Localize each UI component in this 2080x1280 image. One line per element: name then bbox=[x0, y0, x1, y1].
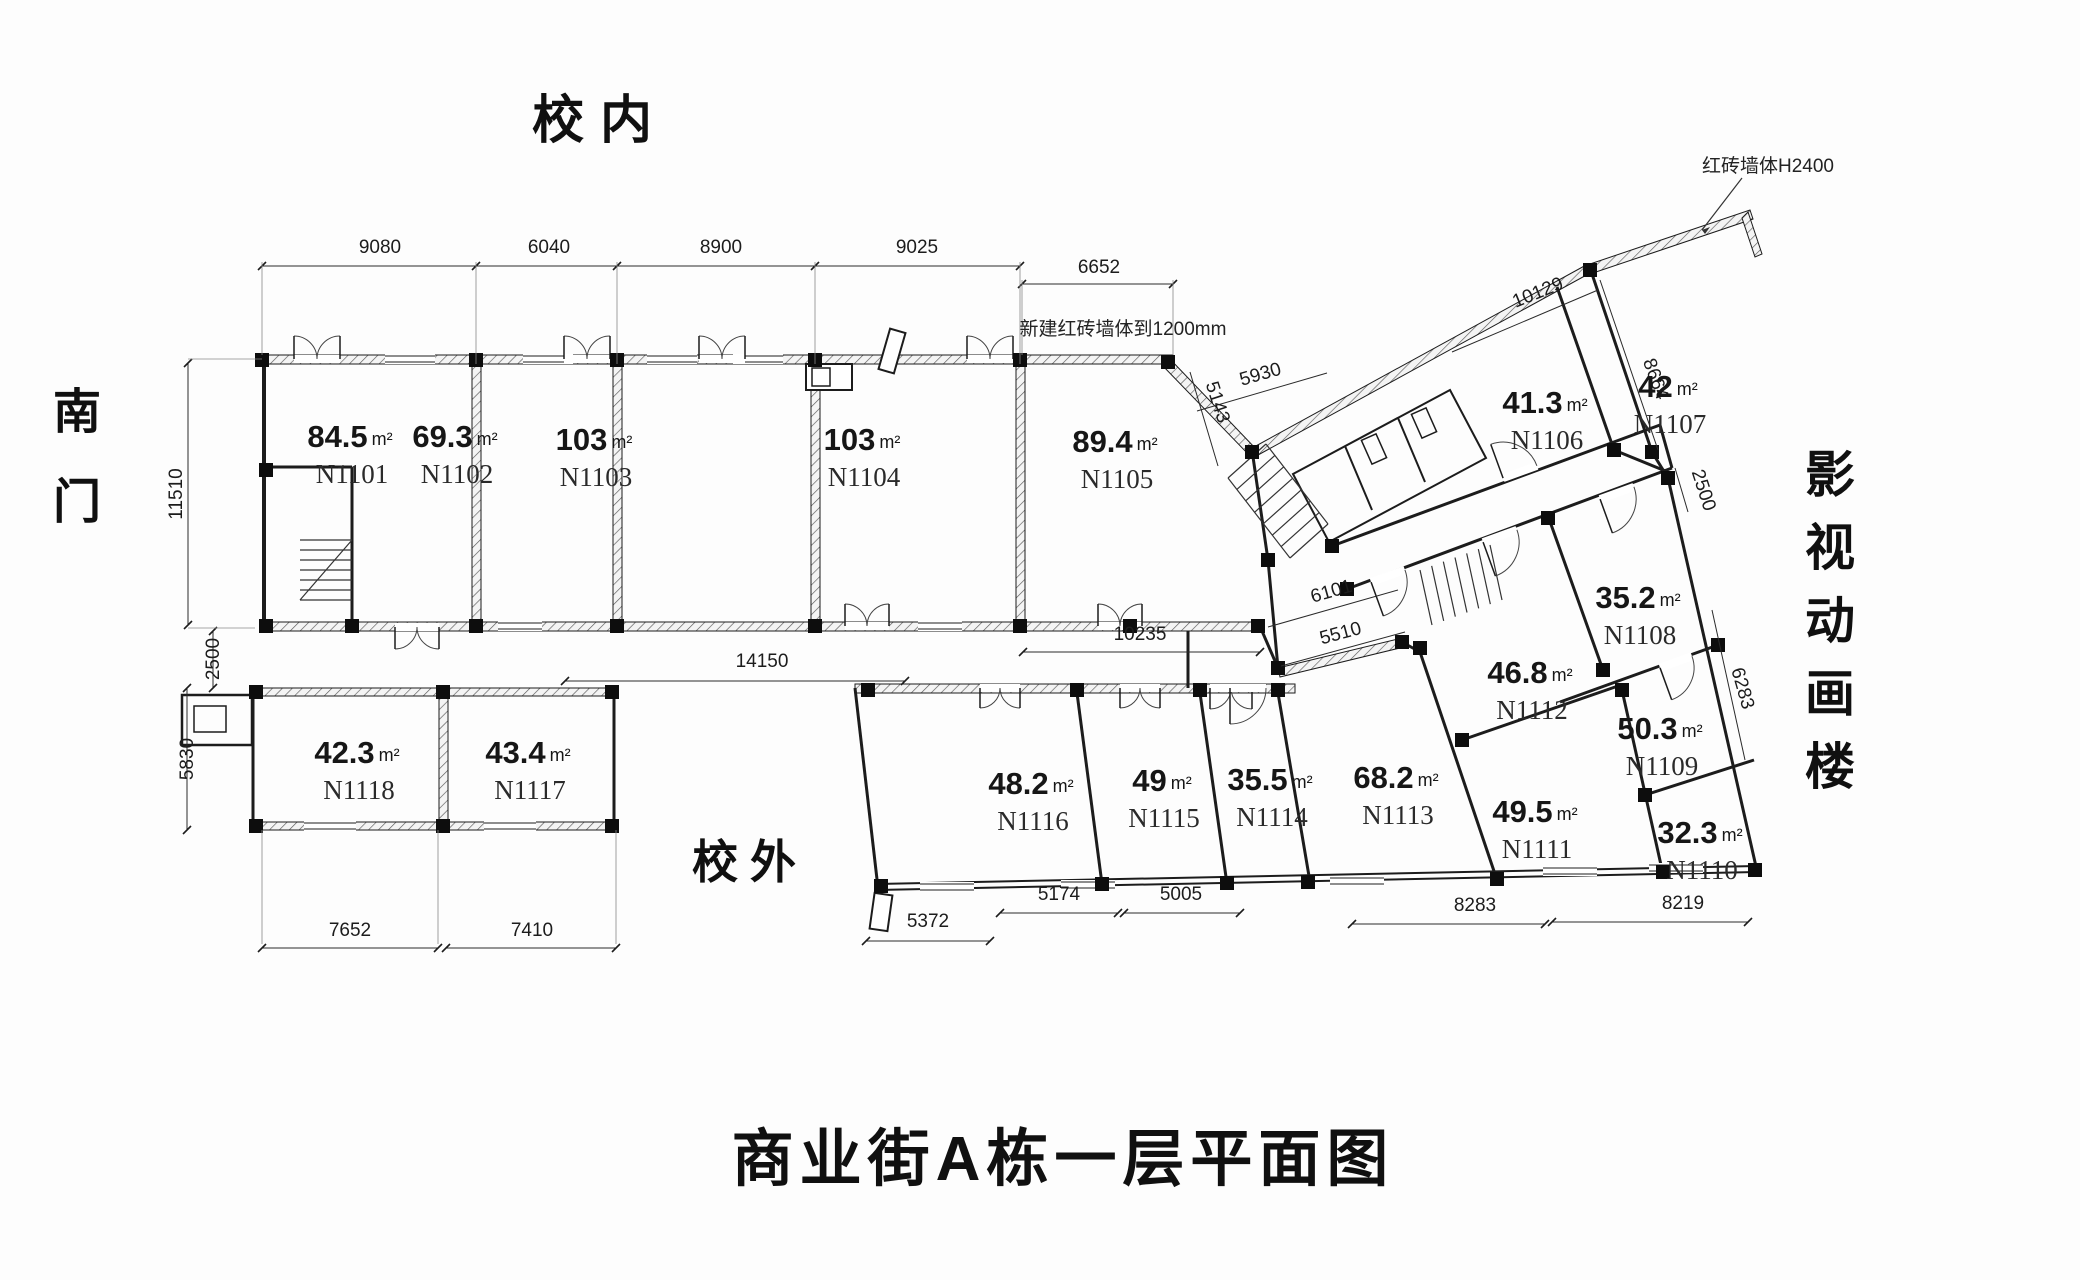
column bbox=[1748, 863, 1762, 877]
dimension-label-7652-8: 7652 bbox=[329, 920, 371, 941]
room-area-N1111: 49.5m² bbox=[1492, 794, 1577, 829]
room-area-N1116: 48.2m² bbox=[988, 766, 1073, 801]
column bbox=[1325, 539, 1339, 553]
door bbox=[564, 336, 610, 363]
column bbox=[1711, 638, 1725, 652]
room-id-N1109: N1109 bbox=[1626, 751, 1699, 781]
wall bbox=[1077, 693, 1102, 884]
window bbox=[1330, 876, 1384, 886]
column bbox=[249, 819, 263, 833]
entry-porch bbox=[182, 695, 252, 745]
floor-plan-page: 9080604089009025665211510250058307652741… bbox=[0, 0, 2080, 1280]
room-id-N1110: N1110 bbox=[1666, 855, 1738, 885]
stair-tread bbox=[1246, 467, 1284, 501]
dimension-label-5372-20: 5372 bbox=[907, 911, 949, 932]
label-south-gate-char: 南 bbox=[53, 386, 101, 439]
room-area-N1108: 35.2m² bbox=[1595, 580, 1680, 615]
dimension-label-14150-10: 14150 bbox=[736, 651, 789, 672]
stair-tread bbox=[1272, 501, 1310, 535]
label-animation-building-char: 楼 bbox=[1805, 739, 1855, 795]
wall bbox=[1614, 450, 1668, 472]
column bbox=[1013, 619, 1027, 633]
column bbox=[259, 463, 273, 477]
wall-hatched bbox=[1016, 364, 1025, 622]
room-id-N1115: N1115 bbox=[1128, 803, 1200, 833]
column bbox=[1583, 263, 1597, 277]
room-area-N1101: 84.5m² bbox=[307, 419, 392, 454]
label-animation-building-char: 动 bbox=[1805, 593, 1855, 649]
wall-hatched bbox=[613, 364, 622, 622]
dimension-label-10235-11: 10235 bbox=[1114, 624, 1167, 645]
stair-tread bbox=[1290, 524, 1328, 558]
label-animation-building: 影视动画楼 bbox=[1805, 447, 1855, 795]
column bbox=[605, 685, 619, 699]
dimension-label-5930-13: 5930 bbox=[1237, 359, 1283, 391]
column bbox=[1193, 683, 1207, 697]
column bbox=[1271, 661, 1285, 675]
door bbox=[395, 623, 439, 649]
room-id-N1117: N1117 bbox=[494, 775, 566, 805]
toilet-fixture bbox=[1411, 408, 1436, 438]
column bbox=[249, 685, 263, 699]
dimension-label-8900-2: 8900 bbox=[700, 237, 742, 258]
floor-plan-canvas: 9080604089009025665211510250058307652741… bbox=[0, 0, 2080, 1280]
wall-hatched bbox=[811, 364, 820, 622]
column bbox=[1395, 635, 1409, 649]
stair-tread bbox=[1420, 570, 1432, 625]
column bbox=[1245, 445, 1259, 459]
column bbox=[345, 619, 359, 633]
column bbox=[1161, 355, 1175, 369]
column bbox=[1271, 683, 1285, 697]
column bbox=[1261, 553, 1275, 567]
room-id-N1118: N1118 bbox=[323, 775, 395, 805]
stair-tread bbox=[1467, 553, 1479, 608]
column bbox=[1615, 683, 1629, 697]
column bbox=[610, 619, 624, 633]
column bbox=[874, 879, 888, 893]
room-id-N1113: N1113 bbox=[1362, 800, 1434, 830]
room-area-N1109: 50.3m² bbox=[1617, 711, 1702, 746]
dimension-label-9080-0: 9080 bbox=[359, 237, 401, 258]
column bbox=[808, 619, 822, 633]
window bbox=[498, 621, 542, 631]
dimension-label-6040-1: 6040 bbox=[528, 237, 570, 258]
window bbox=[304, 821, 356, 831]
wall-hatched bbox=[250, 688, 616, 696]
dimension-label-11510-5: 11510 bbox=[166, 468, 187, 519]
room-area-N1113: 68.2m² bbox=[1353, 760, 1438, 795]
room-area-N1112: 46.8m² bbox=[1487, 655, 1572, 690]
dimension-label-5510-15: 5510 bbox=[1317, 618, 1363, 649]
stair-tread bbox=[1263, 490, 1301, 524]
room-area-N1118: 42.3m² bbox=[314, 735, 399, 770]
column bbox=[1251, 619, 1265, 633]
dimension-label-2500-18: 2500 bbox=[1687, 467, 1720, 514]
wall bbox=[1560, 645, 1718, 702]
column bbox=[1413, 641, 1427, 655]
dimension-label-5830-7: 5830 bbox=[177, 738, 198, 780]
dimension-label-9025-3: 9025 bbox=[896, 237, 938, 258]
label-animation-building-char: 视 bbox=[1805, 520, 1855, 576]
page-title: 商业街A栋一层平面图 bbox=[732, 1125, 1395, 1194]
toilet-fixture bbox=[1361, 434, 1386, 464]
stair-tread bbox=[1255, 478, 1293, 512]
stair-tread bbox=[1432, 566, 1444, 621]
dimension-label-2500-6: 2500 bbox=[203, 638, 224, 680]
door bbox=[980, 684, 1020, 708]
room-area-N1107: 42m² bbox=[1638, 369, 1697, 404]
column bbox=[861, 683, 875, 697]
wall bbox=[1420, 652, 1497, 880]
column bbox=[469, 619, 483, 633]
room-id-N1104: N1104 bbox=[828, 462, 901, 492]
room-area-N1105: 89.4m² bbox=[1072, 424, 1157, 459]
dimension-label-5005-22: 5005 bbox=[1160, 884, 1202, 905]
window bbox=[647, 354, 697, 364]
room-id-N1114: N1114 bbox=[1236, 802, 1308, 832]
room-area-N1110: 32.3m² bbox=[1657, 815, 1742, 850]
window bbox=[484, 821, 536, 831]
column bbox=[1541, 511, 1555, 525]
stair-tread bbox=[1490, 545, 1502, 600]
wall bbox=[855, 688, 878, 888]
walls-layer bbox=[182, 268, 1757, 931]
column bbox=[1301, 875, 1315, 889]
column bbox=[605, 819, 619, 833]
wall bbox=[1398, 418, 1425, 482]
column bbox=[1070, 683, 1084, 697]
room-id-N1106: N1106 bbox=[1511, 425, 1584, 455]
label-south-gate: 南门 bbox=[53, 386, 101, 529]
label-animation-building-char: 影 bbox=[1805, 447, 1855, 503]
label-south-gate-char: 门 bbox=[53, 476, 101, 529]
annotation-brick-wall-height: 红砖墙体H2400 bbox=[1702, 155, 1834, 177]
column bbox=[1607, 443, 1621, 457]
room-id-N1116: N1116 bbox=[997, 806, 1069, 836]
room-id-N1108: N1108 bbox=[1604, 620, 1677, 650]
door bbox=[699, 336, 745, 363]
stair-tread bbox=[1281, 513, 1319, 547]
tilted-door-leaf bbox=[879, 329, 906, 374]
label-campus-inside: 校内 bbox=[532, 92, 668, 150]
column bbox=[1455, 733, 1469, 747]
column bbox=[255, 353, 269, 367]
column bbox=[1490, 872, 1504, 886]
column bbox=[259, 619, 273, 633]
door bbox=[1599, 483, 1647, 533]
door bbox=[1659, 652, 1704, 699]
stair-tread bbox=[1443, 562, 1455, 617]
dimension-label-6283-19: 6283 bbox=[1726, 665, 1758, 711]
column bbox=[1220, 876, 1234, 890]
bottom-entry-post bbox=[870, 893, 893, 931]
room-id-N1111: N1111 bbox=[1502, 834, 1573, 864]
door bbox=[845, 604, 889, 630]
window bbox=[920, 882, 974, 892]
room-area-N1104: 103m² bbox=[824, 422, 901, 457]
door bbox=[1230, 684, 1266, 724]
window bbox=[385, 354, 435, 364]
door bbox=[1120, 684, 1160, 708]
column bbox=[1596, 663, 1610, 677]
wall bbox=[1200, 693, 1227, 884]
door bbox=[1482, 526, 1530, 576]
door bbox=[294, 336, 340, 363]
window bbox=[1543, 866, 1597, 876]
wall-hatched bbox=[439, 696, 448, 822]
room-area-N1115: 49m² bbox=[1132, 763, 1191, 798]
room-id-N1101: N1101 bbox=[316, 459, 389, 489]
dimension-label-5174-21: 5174 bbox=[1038, 884, 1081, 905]
dimension-label-7410-9: 7410 bbox=[511, 920, 553, 941]
door bbox=[967, 336, 1013, 363]
column bbox=[1095, 877, 1109, 891]
label-campus-outside: 校外 bbox=[692, 836, 808, 888]
column bbox=[436, 685, 450, 699]
room-id-N1102: N1102 bbox=[421, 459, 494, 489]
dimension-line bbox=[1675, 468, 1688, 512]
column bbox=[1638, 788, 1652, 802]
room-id-N1103: N1103 bbox=[560, 462, 633, 492]
room-id-N1105: N1105 bbox=[1081, 464, 1154, 494]
stair-tread bbox=[1455, 558, 1467, 613]
wall-hatched bbox=[1590, 210, 1753, 273]
stair-rail bbox=[1266, 444, 1328, 524]
room-id-N1107: N1107 bbox=[1634, 409, 1707, 439]
room-area-N1114: 35.5m² bbox=[1227, 762, 1312, 797]
dimension-label-8283-23: 8283 bbox=[1454, 895, 1496, 916]
dimension-label-6101-14: 6101 bbox=[1308, 576, 1354, 608]
entry-porch-inner bbox=[194, 706, 226, 732]
room-area-N1117: 43.4m² bbox=[485, 735, 570, 770]
room-area-N1106: 41.3m² bbox=[1502, 385, 1587, 420]
dimension-label-8219-24: 8219 bbox=[1662, 893, 1704, 914]
room-area-N1102: 69.3m² bbox=[412, 419, 497, 454]
annotations-layer: 新建红砖墙体到1200mm 红砖墙体H2400 bbox=[1020, 155, 1834, 340]
dimension-label-6652-4: 6652 bbox=[1078, 257, 1120, 278]
annotation-new-brick-wall: 新建红砖墙体到1200mm bbox=[1020, 318, 1227, 340]
window bbox=[918, 621, 962, 631]
room-id-N1112: N1112 bbox=[1496, 695, 1568, 725]
wall bbox=[1252, 450, 1268, 560]
wall-hatched bbox=[472, 364, 481, 622]
column bbox=[1661, 471, 1675, 485]
label-animation-building-char: 画 bbox=[1805, 666, 1855, 722]
